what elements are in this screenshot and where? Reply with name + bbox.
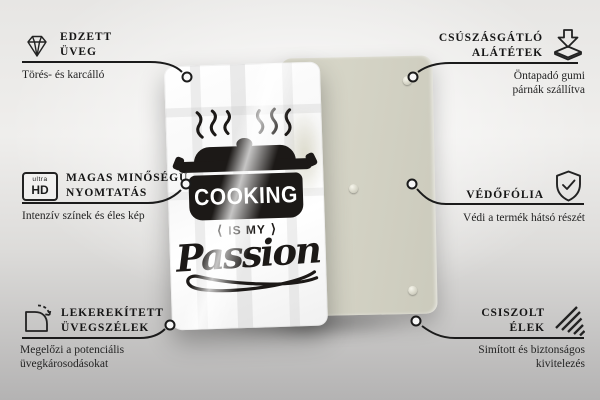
- callout-title: MAGAS MINŐSÉGŰ NYOMTATÁS: [66, 171, 188, 201]
- callout-title: CSISZOLT ÉLEK: [481, 306, 545, 336]
- callout-subtitle: Védi a termék hátsó részét: [395, 211, 585, 225]
- callout-subtitle: Törés- és karcálló: [22, 68, 192, 82]
- callout-protective-film: VÉDŐFÓLIA Védi a termék hátsó részét: [395, 169, 585, 225]
- antislip-pad-icon: [551, 28, 585, 61]
- shield-check-icon: [552, 169, 585, 203]
- antislip-pad: [408, 286, 417, 295]
- callout-subtitle: Öntapadó gumi párnák szállítva: [405, 69, 585, 97]
- callout-hq-print: ultra HD MAGAS MINŐSÉGŰ NYOMTATÁS Intenz…: [22, 170, 202, 223]
- ultra-hd-icon: ultra HD: [22, 172, 58, 201]
- callout-subtitle: Intenzív színek és éles kép: [22, 209, 202, 223]
- callout-tempered-glass: EDZETT ÜVEG Törés- és karcálló: [22, 29, 192, 82]
- callout-polished-edges: CSISZOLT ÉLEK Simított és biztonságos ki…: [405, 303, 585, 371]
- design-word-cooking: COOKING: [194, 182, 299, 212]
- steam-icon: [185, 106, 302, 140]
- polished-edges-icon: [553, 304, 585, 336]
- callout-subtitle: Simított és biztonságos kivitelezés: [405, 343, 585, 371]
- callout-title: EDZETT ÜVEG: [60, 30, 112, 60]
- callout-title: LEKEREKÍTETT ÜVEGSZÉLEK: [61, 306, 164, 336]
- pot-body: COOKING: [188, 172, 303, 221]
- callout-rounded-edges: LEKEREKÍTETT ÜVEGSZÉLEK Megelőzi a poten…: [20, 302, 200, 371]
- antislip-pad: [349, 184, 358, 193]
- rounded-corner-icon: [20, 303, 53, 336]
- callout-antislip-pads: CSÚSZÁSGÁTLÓ ALÁTÉTEK Öntapadó gumi párn…: [405, 28, 585, 97]
- callout-subtitle: Megelőzi a potenciális üvegkárosodásokat: [20, 343, 200, 371]
- callout-title: CSÚSZÁSGÁTLÓ ALÁTÉTEK: [439, 31, 543, 61]
- diamond-icon: [22, 33, 52, 60]
- callout-title: VÉDŐFÓLIA: [466, 188, 544, 203]
- product-infographic: COOKING ⟨ IS MY ⟩ Passion: [0, 0, 600, 400]
